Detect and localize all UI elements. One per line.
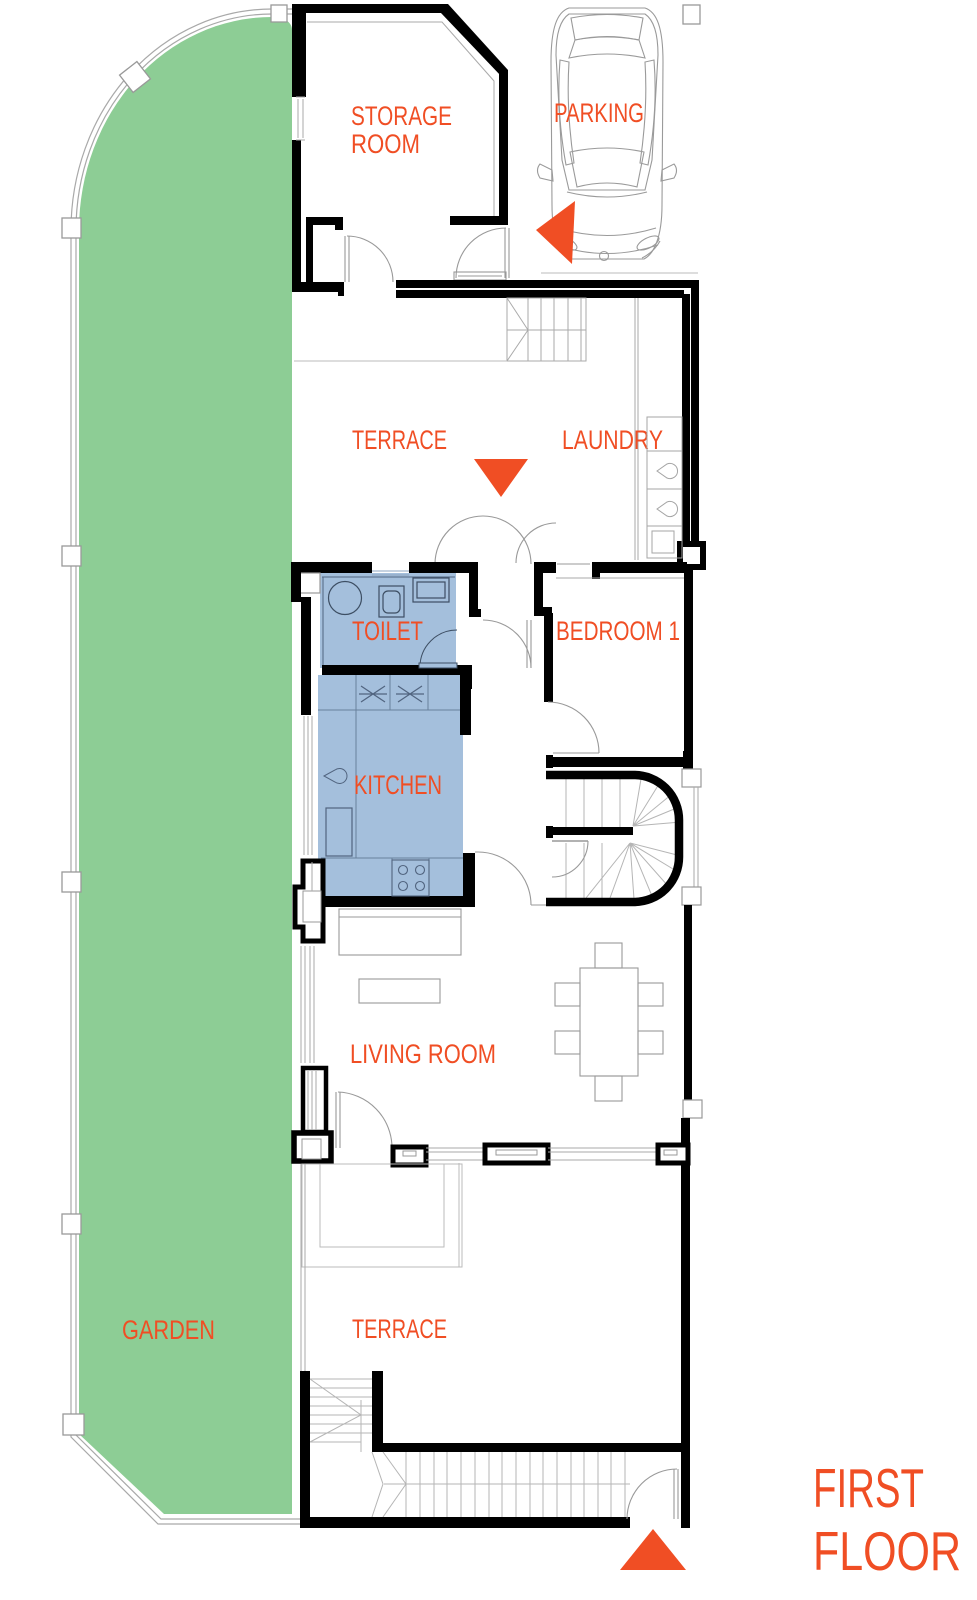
svg-text:TERRACE: TERRACE: [352, 1314, 447, 1344]
svg-text:PARKING: PARKING: [554, 98, 644, 128]
svg-text:LIVING ROOM: LIVING ROOM: [350, 1039, 496, 1069]
svg-text:FLOOR: FLOOR: [813, 1520, 961, 1582]
svg-text:ROOM: ROOM: [351, 129, 420, 159]
svg-text:GARDEN: GARDEN: [122, 1315, 215, 1345]
svg-text:KITCHEN: KITCHEN: [354, 770, 442, 800]
svg-text:BEDROOM 1: BEDROOM 1: [556, 616, 680, 646]
svg-text:TERRACE: TERRACE: [352, 425, 447, 455]
svg-text:TOILET: TOILET: [352, 616, 423, 646]
svg-text:STORAGE: STORAGE: [351, 101, 452, 131]
svg-text:FIRST: FIRST: [813, 1457, 924, 1519]
